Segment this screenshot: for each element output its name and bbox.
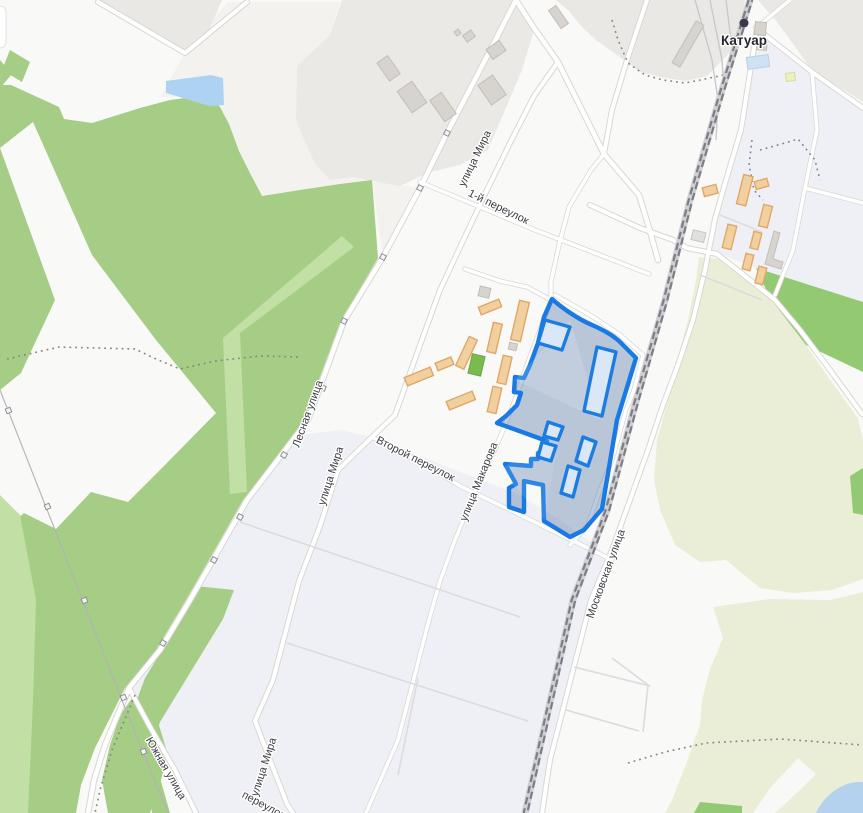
svg-text:Катуар: Катуар <box>721 33 767 48</box>
